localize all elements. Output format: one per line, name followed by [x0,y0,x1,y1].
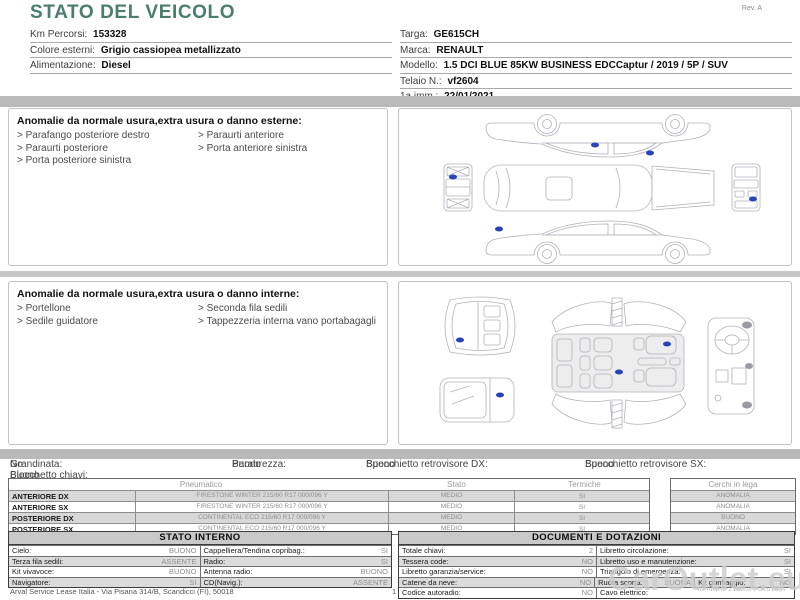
km-value: 153328 [93,29,126,40]
table-row: Libretto garanzia/service:NO Triangolo d… [399,566,794,577]
damage-marker [663,342,671,347]
vehicle-info-left: Km Percorsi: 153328 Colore esterni: Grig… [30,27,392,74]
tyre-position: ANTERIORE SX [9,502,136,512]
table-row: Terza fila sedili:ASSENTE Radio:SI [9,556,391,567]
anomaly-item: Seconda fila sedili [198,303,379,316]
section-separator-bar [0,449,800,459]
revision-label: Rev. A [742,5,762,12]
interior-diagram-box [398,281,792,445]
tyre-stato: MEDIO [389,502,515,512]
tyre-termiche: SI [515,504,649,511]
anomaly-item: Paraurti posteriore [17,143,198,156]
info-row-model: Modello: 1.5 DCI BLUE 85KW BUSINESS EDCC… [400,58,792,74]
exterior-anomalies-col-left: Parafango posteriore destro Paraurti pos… [17,130,198,168]
table-row: Kit vivavoce:BUONO Antenna radio:BUONO [9,566,391,577]
tyre-spec: FIRESTONE WINTER 215/60 R17 000/096 Y [136,502,389,512]
table-row: Navigatore:SI CD(Navig.):ASSENTE [9,577,391,588]
page-title: STATO DEL VEICOLO [30,2,235,24]
tyre-termiche: SI [515,515,649,522]
anomaly-item: Parafango posteriore destro [17,130,198,143]
damage-marker [456,338,464,343]
damage-marker [495,227,503,232]
cerchi-value: BUONO [671,512,795,523]
car-exterior-diagram [400,109,790,265]
tyre-header-stato: Stato [393,480,520,489]
tyre-spec: FIRESTONE WINTER 215/60 R17 000/096 Y [136,491,389,501]
cerchi-header: Cerchi in lega [671,479,795,490]
anomaly-item: Porta anteriore sinistra [198,143,379,156]
car-interior-diagram [400,282,790,444]
anomaly-item: Sedile guidatore [17,316,198,329]
car-side-view-top [486,115,710,158]
chassis-value: vf2604 [447,76,478,87]
anomaly-item: Portellone [17,303,198,316]
vehicle-status-report: STATO DEL VEICOLO Rev. A Km Percorsi: 15… [0,0,800,600]
info-row-plate: Targa: GE615CH [400,27,792,43]
exterior-diagram-box [398,108,792,266]
table-row: ANTERIORE SX FIRESTONE WINTER 215/60 R17… [9,501,649,512]
plate-value: GE615CH [434,29,480,40]
tyre-termiche: SI [515,493,649,500]
alloy-wheels-table: Cerchi in lega ANOMALIA ANOMALIA BUONO A… [670,478,796,535]
cerchi-value: ANOMALIA [671,490,795,501]
exterior-anomalies-col-right: Paraurti anteriore Porta anteriore sinis… [198,130,379,168]
car-top-view [484,165,714,211]
vehicle-info-right: Targa: GE615CH Marca: RENAULT Modello: 1… [400,27,792,105]
damage-marker [591,143,599,148]
stato-interno-table: STATO INTERNO Cielo:BUONO Cappelliera/Te… [8,531,392,588]
tyre-spec: CONTINENTAL ECO 215/60 R17 000/096 Y [136,513,389,523]
fuel-value: Diesel [101,60,130,71]
exterior-anomalies-title: Anomalie da normale usura,extra usura o … [9,109,387,130]
tyre-position: POSTERIORE DX [9,513,136,523]
color-label: Colore esterni: [30,45,95,56]
tyre-table: Pneumatico Stato Termiche ANTERIORE DX F… [8,478,650,535]
tyre-table-header: Pneumatico Stato Termiche [9,479,649,490]
exterior-anomalies-list: Parafango posteriore destro Paraurti pos… [9,130,387,168]
cabin-top-view [552,298,686,428]
brand-label: Marca: [400,45,431,56]
color-value: Grigio cassiopea metallizzato [101,45,241,56]
brand-value: RENAULT [436,45,483,56]
km-label: Km Percorsi: [30,29,87,40]
interior-anomalies-col-right: Seconda fila sedili Tappezzeria interna … [198,303,379,328]
general-condition-row1: Grandinata: No Parabrezza: Buono Specchi… [0,459,800,470]
tyre-stato: MEDIO [389,513,515,523]
model-label: Modello: [400,60,438,71]
info-row-brand: Marca: RENAULT [400,43,792,59]
footer-company-address: Arval Service Lease Italia - Via Pisana … [10,587,234,596]
fuel-label: Alimentazione: [30,60,96,71]
model-value: 1.5 DCI BLUE 85KW BUSINESS EDCCaptur / 2… [444,60,728,71]
anomaly-item: Porta posteriore sinistra [17,155,198,168]
documenti-dotazioni-title: DOCUMENTI E DOTAZIONI [399,532,794,545]
section-separator-bar [0,96,800,107]
exterior-anomalies-box: Anomalie da normale usura,extra usura o … [8,108,388,266]
interior-anomalies-list: Portellone Sedile guidatore Seconda fila… [9,303,387,328]
damage-marker [496,393,504,398]
interior-anomalies-col-left: Portellone Sedile guidatore [17,303,198,328]
info-row-color: Colore esterni: Grigio cassiopea metalli… [30,43,392,59]
info-row-fuel: Alimentazione: Diesel [30,58,392,74]
footer-document-id: ID IuNRJ-21a662 , Gcu18u4 [698,586,786,593]
stato-interno-title: STATO INTERNO [9,532,391,545]
footer-page-number: 1 [392,587,396,596]
damage-marker [449,175,457,180]
tyre-position: ANTERIORE DX [9,491,136,501]
table-row: Tessera code:NO Libretto uso e manutenzi… [399,556,794,567]
damage-marker [615,370,623,375]
tyre-stato: MEDIO [389,491,515,501]
car-rear-view [732,164,760,211]
trunk-view [445,297,515,355]
car-side-view-bottom [486,221,710,264]
info-row-km: Km Percorsi: 153328 [30,27,392,43]
table-row: POSTERIORE DX CONTINENTAL ECO 215/60 R17… [9,512,649,523]
damage-marker [749,197,757,202]
car-front-view [444,164,472,211]
table-row: Totale chiavi:2 Libretto circolazione:SI [399,545,794,556]
tailgate-view [440,378,514,422]
damage-marker [646,151,654,156]
tyre-header-pneumatico: Pneumatico [9,480,393,489]
plate-label: Targa: [400,29,428,40]
tyre-header-termiche: Termiche [520,480,649,489]
info-row-chassis: Telaio N.: vf2604 [400,74,792,90]
interior-anomalies-box: Anomalie da normale usura,extra usura o … [8,281,388,445]
anomaly-item: Tappezzeria interna vano portabagagli [198,316,379,329]
thin-separator-bar [0,271,800,277]
dashboard-view [708,318,754,414]
table-row: ANTERIORE DX FIRESTONE WINTER 215/60 R17… [9,490,649,501]
table-row: Cielo:BUONO Cappelliera/Tendina copribag… [9,545,391,556]
chassis-label: Telaio N.: [400,76,442,87]
interior-anomalies-title: Anomalie da normale usura,extra usura o … [9,282,387,303]
anomaly-item: Paraurti anteriore [198,130,379,143]
cerchi-value: ANOMALIA [671,501,795,512]
